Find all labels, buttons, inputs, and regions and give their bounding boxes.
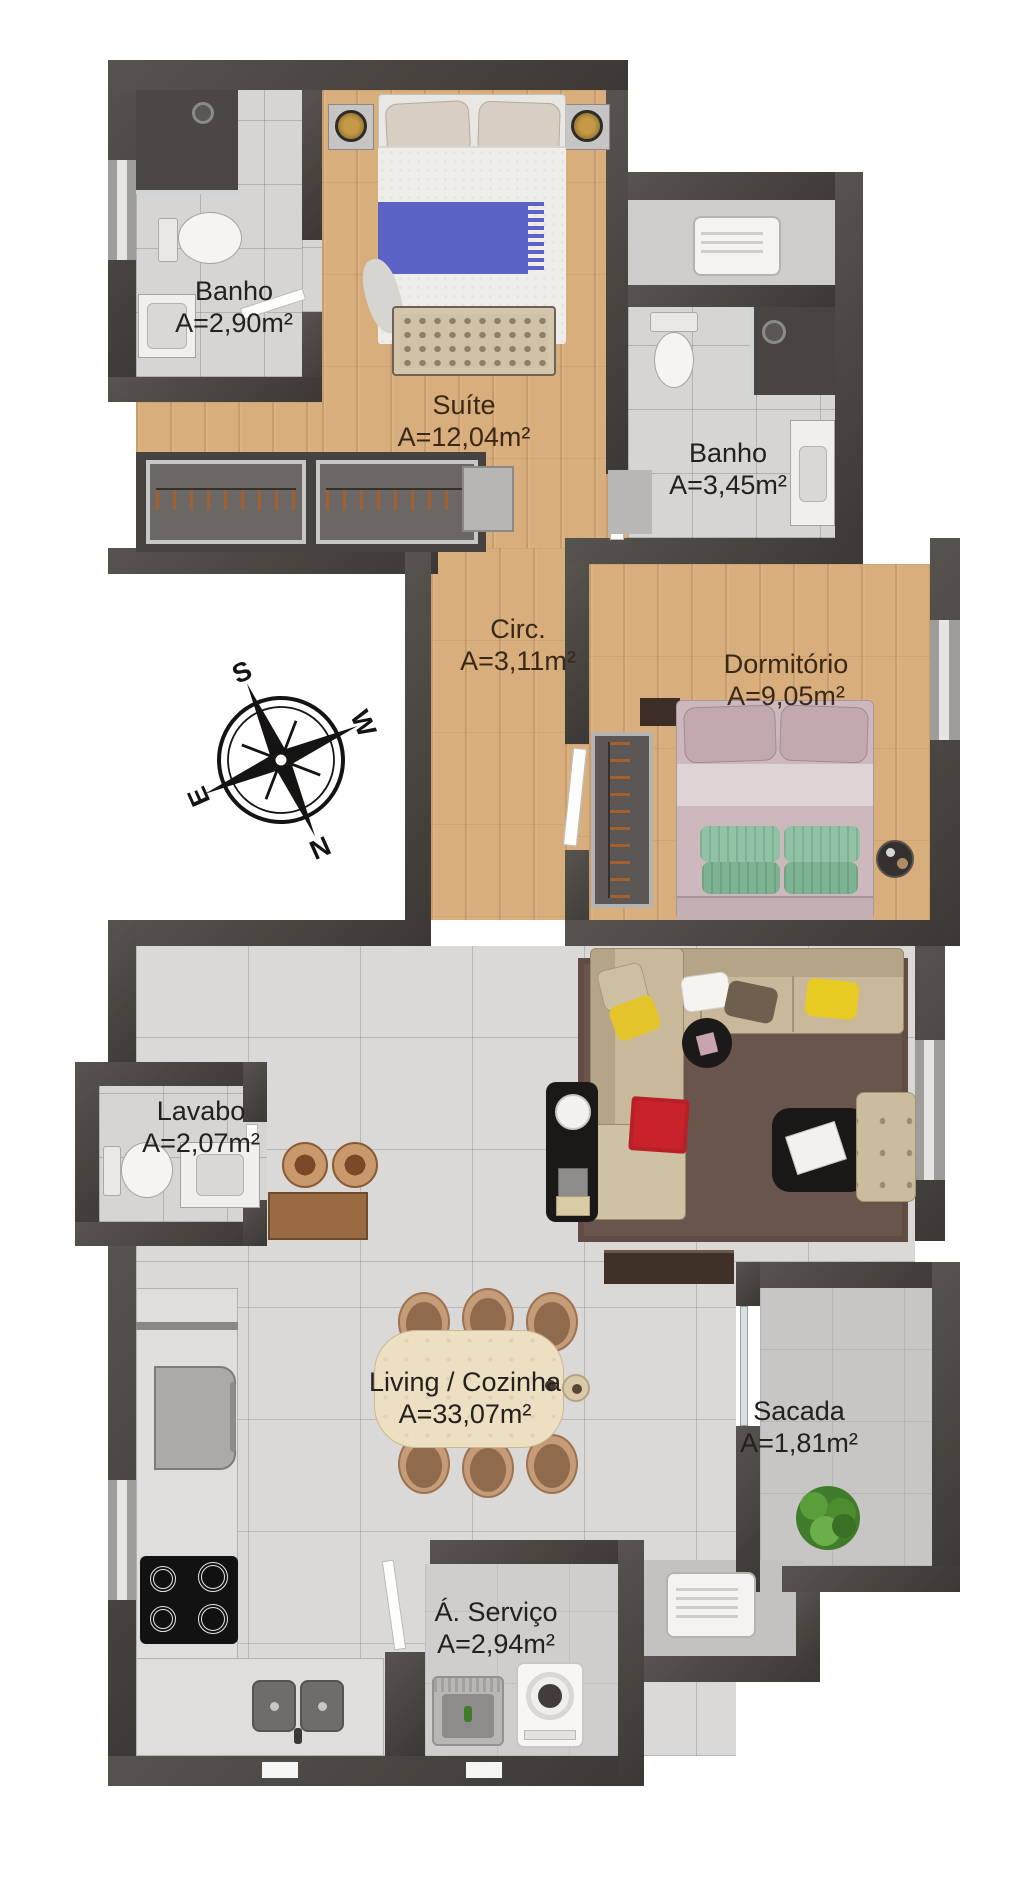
wall-segment [932, 1262, 960, 1592]
green-pillow [700, 826, 780, 862]
toilet-tank [158, 218, 178, 262]
green-pillow [784, 862, 858, 894]
wall-segment [760, 1262, 960, 1288]
bed-pillow [683, 704, 777, 763]
room-area: A=2,07m² [142, 1128, 260, 1160]
wall-segment [628, 285, 835, 307]
counter-edge [136, 1322, 238, 1330]
room-area: A=2,94m² [434, 1629, 557, 1661]
bed-pillow [779, 704, 869, 763]
shoe-cabinet [462, 466, 514, 532]
toilet-bowl [178, 212, 242, 264]
room-name: Á. Serviço [434, 1597, 557, 1629]
wall-segment [75, 1062, 99, 1246]
burner [198, 1604, 228, 1634]
wall-segment [628, 172, 863, 200]
tub-faucet [464, 1706, 472, 1722]
wall-segment [405, 548, 431, 946]
faucet [294, 1728, 302, 1744]
burner [198, 1562, 228, 1592]
room-name: Circ. [460, 614, 576, 646]
toilet-tank [650, 312, 698, 332]
throw-pillow-yellow [804, 977, 860, 1020]
plant-leaf [832, 1514, 856, 1538]
wall-segment [930, 538, 960, 946]
wall-segment [736, 1262, 760, 1306]
ac-grille [701, 232, 763, 258]
sink-basin [799, 446, 827, 502]
room-label-banho-suite: Banho A=2,90m² [175, 276, 293, 339]
window [108, 160, 136, 260]
window [915, 1040, 945, 1180]
room-name: Suíte [398, 390, 531, 422]
room-label-servico: Á. Serviço A=2,94m² [434, 1597, 557, 1660]
wardrobe-rail-hangers [156, 488, 296, 510]
room-label-living: Living / Cozinha A=33,07m² [369, 1367, 561, 1430]
compass-letter-east: E [181, 782, 216, 811]
wall-segment [796, 1592, 820, 1662]
compass-letter-west: W [344, 706, 381, 742]
room-area: A=3,11m² [460, 646, 576, 678]
shower-box [750, 307, 835, 395]
room-name: Banho [175, 276, 293, 308]
room-area: A=9,05m² [724, 681, 849, 713]
green-pillow [702, 862, 780, 894]
bath-mat [608, 470, 652, 534]
sideboard [604, 1250, 734, 1284]
wall-vent [262, 1762, 298, 1778]
ac-grille [676, 1588, 738, 1618]
room-name: Sacada [740, 1396, 858, 1428]
wall-segment [75, 1222, 267, 1246]
floor-banho-door [302, 240, 322, 312]
room-label-circulacao: Circ. A=3,11m² [460, 614, 576, 677]
room-label-dormitorio: Dormitório A=9,05m² [724, 649, 849, 712]
room-label-lavabo: Lavabo A=2,07m² [142, 1096, 260, 1159]
wall-segment [108, 920, 431, 946]
table-bowl-center [572, 1384, 582, 1394]
ottoman [856, 1092, 916, 1202]
table-lamp [571, 110, 603, 142]
room-area: A=33,07m² [369, 1399, 561, 1431]
burner [150, 1606, 176, 1632]
room-area: A=1,81m² [740, 1428, 858, 1460]
room-area: A=3,45m² [669, 470, 787, 502]
burner [150, 1566, 176, 1592]
wall-vent [466, 1762, 502, 1778]
wardrobe-rail-hangers [326, 488, 468, 510]
bed-blanket-blue [378, 202, 528, 274]
sink-drain [318, 1702, 327, 1711]
stool-cup [886, 848, 895, 857]
bed-foot-blanket [677, 896, 873, 920]
room-name: Lavabo [142, 1096, 260, 1128]
fridge [154, 1366, 236, 1470]
bar-counter [268, 1192, 368, 1240]
wall-segment [108, 377, 322, 402]
wall-segment [782, 1566, 960, 1592]
window [930, 620, 960, 740]
sofa-cushion-gap [792, 976, 794, 1032]
washer-panel [524, 1730, 576, 1740]
sink-basin [196, 1154, 244, 1196]
bar-stool [282, 1142, 328, 1188]
wardrobe-rail-hangers [608, 742, 630, 898]
speaker [555, 1094, 591, 1130]
bedside-bench [640, 698, 680, 726]
room-label-sacada: Sacada A=1,81m² [740, 1396, 858, 1459]
wall-segment [108, 60, 628, 90]
shower-drain [192, 102, 214, 124]
shower-drain [762, 320, 786, 344]
floor-plan: Banho A=2,90m² Suíte A=12,04m² Banho A=3… [0, 0, 1024, 1883]
green-pillow [784, 826, 860, 862]
floor-circ [431, 548, 565, 920]
compass-letter-south: S [228, 655, 257, 690]
wall-segment [385, 1652, 425, 1756]
room-area: A=2,90m² [175, 308, 293, 340]
wall-segment [618, 1540, 644, 1786]
table-lamp [335, 110, 367, 142]
wall-segment [565, 538, 863, 564]
wall-segment [108, 1756, 644, 1786]
wall-segment [644, 1656, 820, 1682]
dining-chair-seat [406, 1444, 442, 1488]
room-area: A=12,04m² [398, 422, 531, 454]
room-label-suite: Suíte A=12,04m² [398, 390, 531, 453]
red-throw [628, 1096, 690, 1154]
wall-segment [835, 172, 863, 564]
compass-rose: S W N E [181, 655, 381, 865]
room-name: Living / Cozinha [369, 1367, 561, 1399]
toilet-bowl [654, 332, 694, 388]
room-name: Banho [669, 438, 787, 470]
dining-chair-seat [470, 1448, 506, 1492]
dining-chair-seat [534, 1444, 570, 1488]
bar-stool [332, 1142, 378, 1188]
sink-drain [270, 1702, 279, 1711]
shower-glass [136, 190, 240, 194]
bed-bench-tufting [400, 314, 548, 368]
wall-segment [430, 1540, 642, 1564]
room-label-banho-social: Banho A=3,45m² [669, 438, 787, 501]
fridge-handle [230, 1382, 236, 1452]
toilet-tank [103, 1146, 121, 1196]
window [108, 1480, 136, 1600]
shower-box [136, 90, 238, 192]
room-name: Dormitório [724, 649, 849, 681]
stool-cup [897, 858, 908, 869]
wall-segment [302, 90, 322, 240]
compass-letter-north: N [305, 830, 335, 865]
wall-segment [565, 920, 945, 946]
washer-drum [538, 1684, 562, 1708]
bed-sheet-band [677, 764, 873, 806]
wall-segment [75, 1062, 267, 1086]
bed-blanket-fringe [528, 202, 544, 274]
laundry-tub-ribs [434, 1678, 502, 1692]
console-box [556, 1196, 590, 1216]
side-stool [876, 840, 914, 878]
